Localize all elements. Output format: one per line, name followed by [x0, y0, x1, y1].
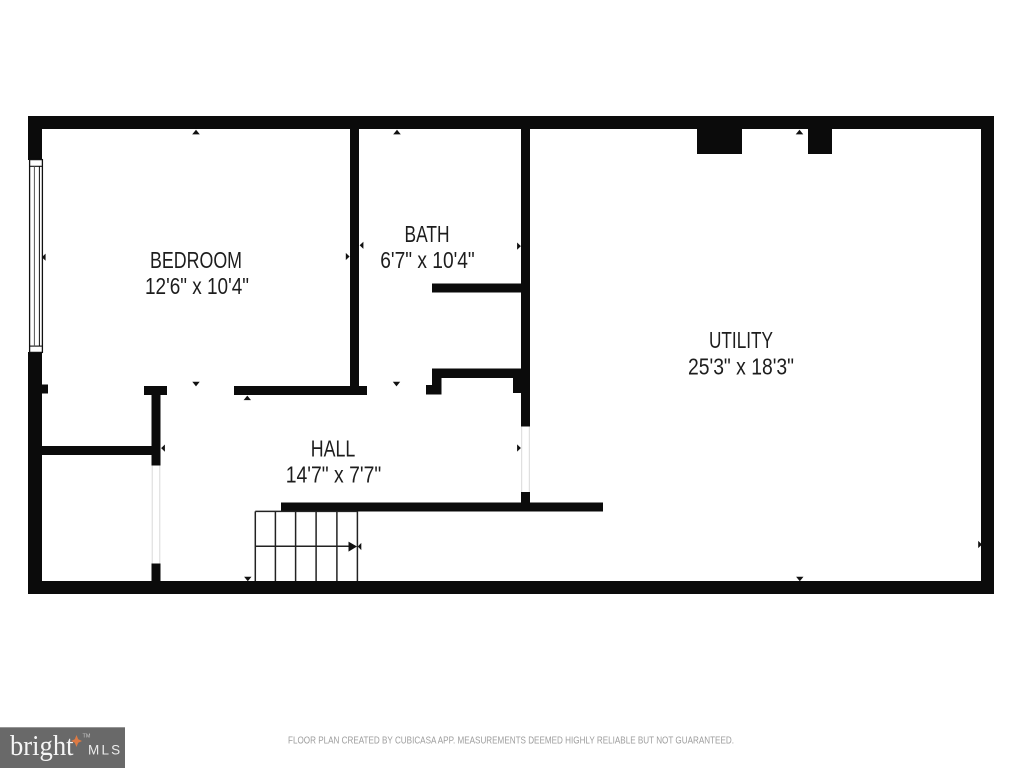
svg-text:bright: bright [10, 730, 74, 762]
svg-text:UTILITY: UTILITY [709, 327, 773, 353]
svg-text:HALL: HALL [311, 436, 356, 462]
svg-text:6'7" x 10'4": 6'7" x 10'4" [380, 247, 475, 273]
svg-text:FLOOR PLAN CREATED BY CUBICASA: FLOOR PLAN CREATED BY CUBICASA APP. MEAS… [288, 735, 734, 747]
svg-text:MLS: MLS [88, 743, 122, 758]
svg-text:BATH: BATH [405, 221, 450, 247]
svg-text:TM: TM [83, 734, 91, 740]
svg-text:12'6" x 10'4": 12'6" x 10'4" [145, 273, 249, 299]
svg-text:BEDROOM: BEDROOM [150, 247, 242, 273]
svg-text:25'3" x 18'3": 25'3" x 18'3" [688, 354, 794, 380]
svg-text:14'7" x 7'7": 14'7" x 7'7" [286, 462, 382, 488]
